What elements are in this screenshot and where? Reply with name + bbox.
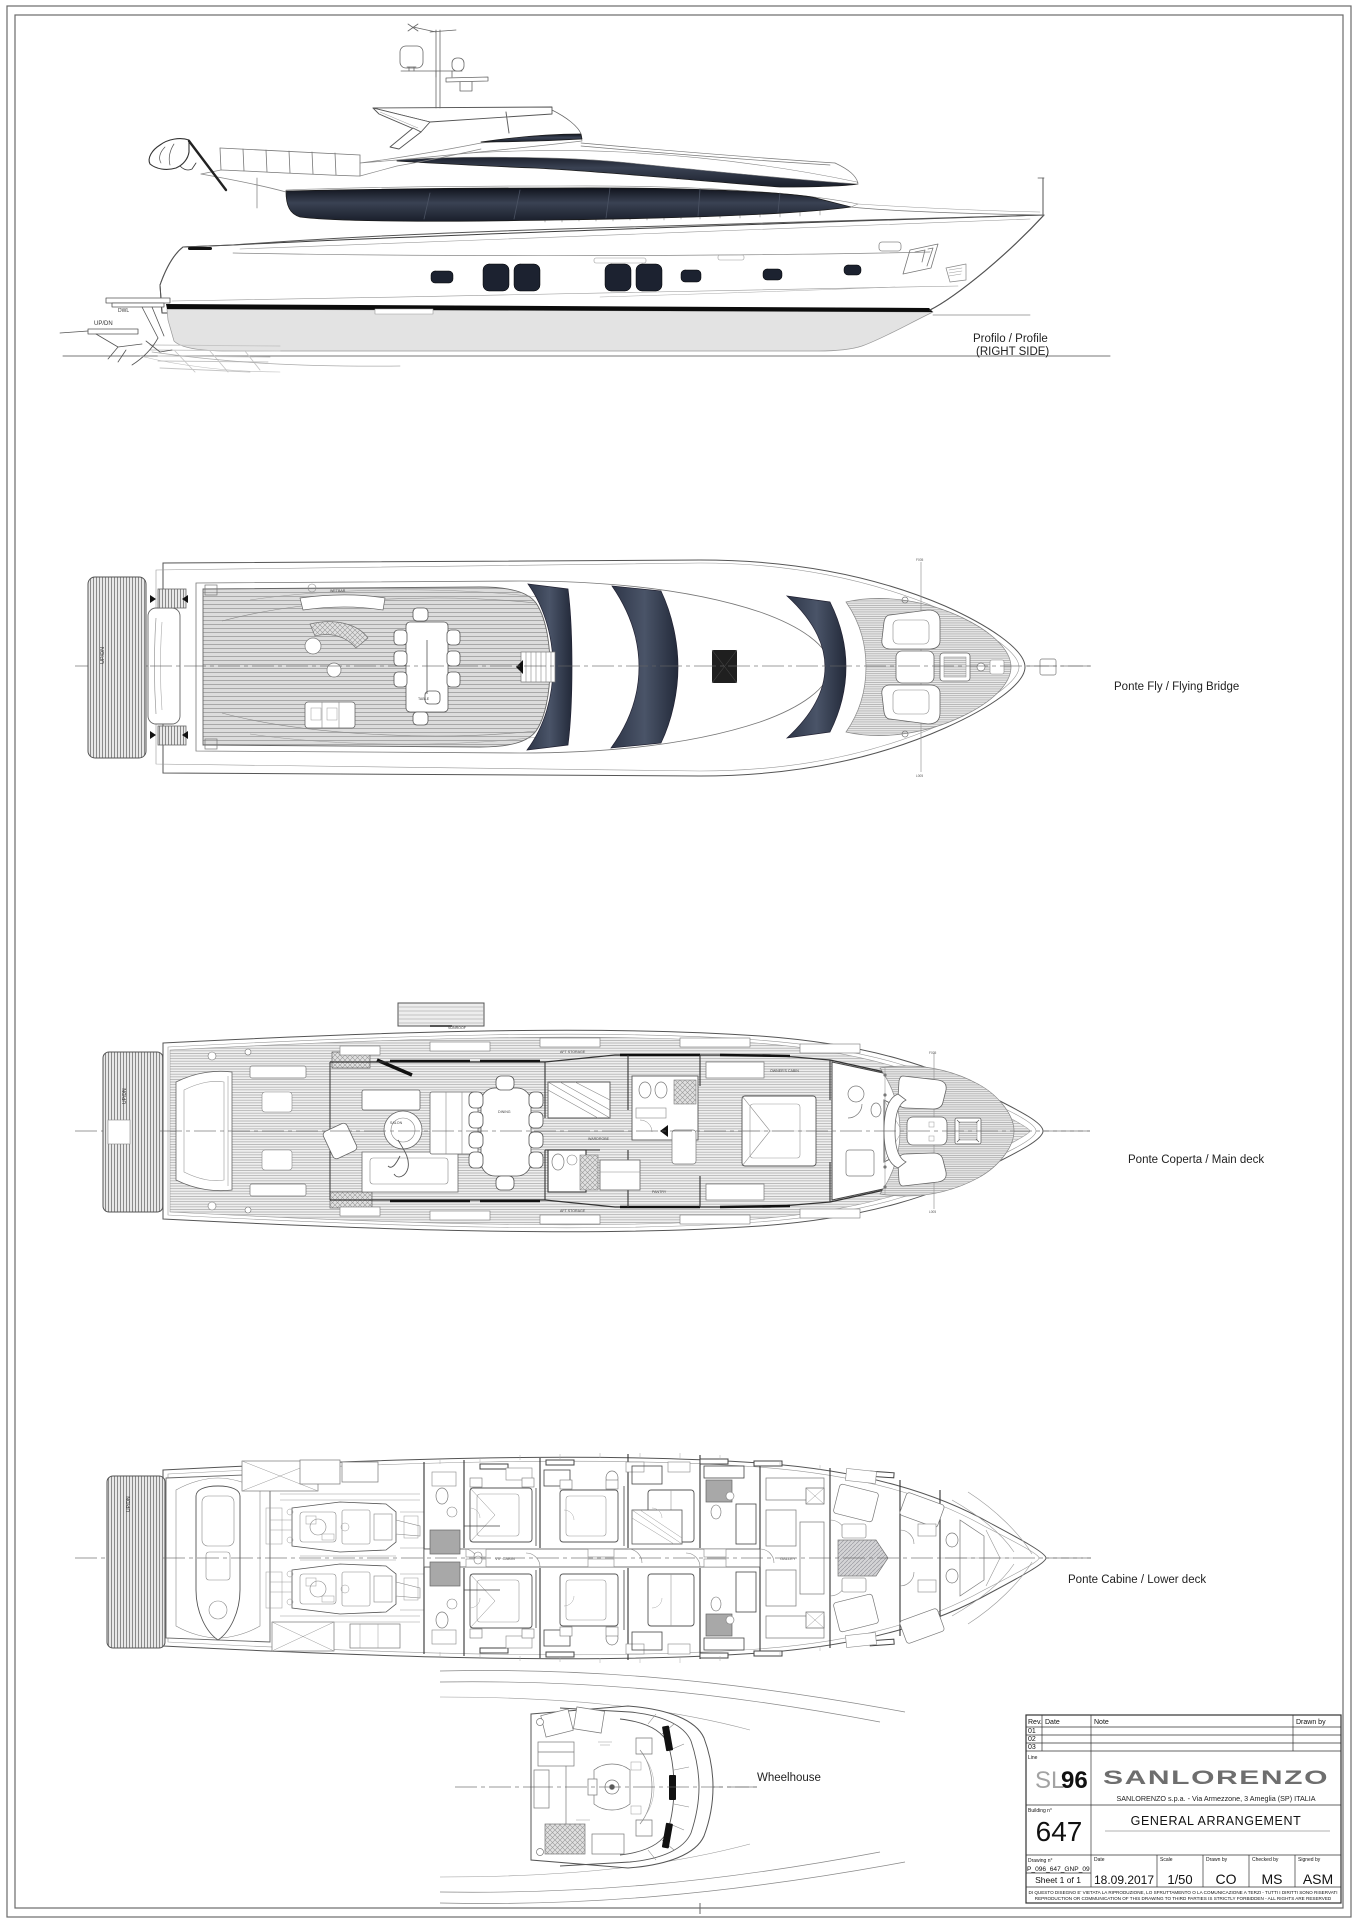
svg-text:Ponte Cabine / Lower deck: Ponte Cabine / Lower deck bbox=[1068, 1574, 1206, 1586]
svg-text:Drawing n°: Drawing n° bbox=[1028, 1858, 1053, 1864]
svg-text:Line: Line bbox=[1028, 1755, 1038, 1761]
svg-text:L005: L005 bbox=[929, 1210, 936, 1214]
svg-text:MS: MS bbox=[1262, 1871, 1283, 1887]
svg-text:01: 01 bbox=[1028, 1728, 1036, 1735]
svg-text:L005: L005 bbox=[916, 774, 923, 778]
svg-text:F005: F005 bbox=[929, 1051, 936, 1055]
svg-text:Scale: Scale bbox=[1160, 1857, 1173, 1863]
svg-text:02: 02 bbox=[1028, 1736, 1036, 1743]
svg-text:Drawn by: Drawn by bbox=[1296, 1719, 1326, 1726]
svg-text:SANLORENZO s.p.a. - Via Armez: SANLORENZO s.p.a. - Via Armezzone, 3 Ame… bbox=[1116, 1794, 1315, 1803]
svg-text:AFT STORAGE: AFT STORAGE bbox=[560, 1050, 586, 1054]
svg-text:DWL: DWL bbox=[118, 308, 129, 314]
svg-text:Building n°: Building n° bbox=[1028, 1808, 1052, 1814]
svg-text:Ponte Coperta / Main deck: Ponte Coperta / Main deck bbox=[1128, 1154, 1264, 1166]
svg-text:Date: Date bbox=[1045, 1719, 1060, 1726]
svg-text:F005: F005 bbox=[916, 558, 923, 562]
svg-text:Rev.: Rev. bbox=[1028, 1719, 1042, 1726]
svg-text:Drawn by: Drawn by bbox=[1206, 1857, 1228, 1863]
svg-text:SANLORENZO: SANLORENZO bbox=[1103, 1768, 1329, 1789]
svg-text:Sheet 1 of 1: Sheet 1 of 1 bbox=[1035, 1875, 1081, 1885]
svg-text:GENERAL ARRANGEMENT: GENERAL ARRANGEMENT bbox=[1131, 1814, 1302, 1828]
svg-text:REPRODUCTION OR COMMUNICATION: REPRODUCTION OR COMMUNICATION OF THIS DR… bbox=[1035, 1896, 1332, 1901]
svg-text:VIP CABIN: VIP CABIN bbox=[495, 1556, 515, 1561]
svg-text:18.09.2017: 18.09.2017 bbox=[1094, 1873, 1154, 1887]
svg-text:PANTRY: PANTRY bbox=[652, 1190, 667, 1194]
svg-text:GALLEY: GALLEY bbox=[780, 1556, 796, 1561]
svg-text:P_096_647_GNP_09: P_096_647_GNP_09 bbox=[1027, 1866, 1090, 1873]
svg-text:ASM: ASM bbox=[1303, 1871, 1333, 1887]
svg-text:SL: SL bbox=[1035, 1767, 1064, 1794]
svg-text:WARDROBE: WARDROBE bbox=[588, 1137, 610, 1141]
svg-text:AFT STORAGE: AFT STORAGE bbox=[560, 1209, 586, 1213]
svg-text:Profilo / Profile: Profilo / Profile bbox=[973, 333, 1048, 345]
svg-text:Date: Date bbox=[1094, 1857, 1105, 1863]
svg-text:Checked by: Checked by bbox=[1252, 1857, 1279, 1863]
svg-text:96: 96 bbox=[1061, 1767, 1088, 1794]
svg-text:WETBAR: WETBAR bbox=[330, 589, 346, 593]
svg-text:(RIGHT SIDE): (RIGHT SIDE) bbox=[976, 346, 1049, 358]
svg-text:TABLE: TABLE bbox=[418, 697, 430, 701]
svg-text:1/50: 1/50 bbox=[1167, 1872, 1192, 1887]
svg-text:UP/DN: UP/DN bbox=[94, 321, 113, 327]
svg-text:Wheelhouse: Wheelhouse bbox=[757, 1772, 821, 1784]
svg-text:647: 647 bbox=[1036, 1816, 1083, 1847]
svg-text:03: 03 bbox=[1028, 1744, 1036, 1751]
svg-text:UP/DN: UP/DN bbox=[122, 1088, 128, 1104]
svg-text:DI QUESTO DISEGNO E' VIETATA L: DI QUESTO DISEGNO E' VIETATA LA RIPRODUZ… bbox=[1028, 1890, 1337, 1895]
svg-text:CO: CO bbox=[1216, 1871, 1237, 1887]
svg-text:Signed by: Signed by bbox=[1298, 1857, 1321, 1863]
svg-text:UP/DN: UP/DN bbox=[100, 647, 106, 664]
svg-text:SALON: SALON bbox=[390, 1121, 403, 1125]
svg-text:Note: Note bbox=[1094, 1719, 1109, 1726]
svg-text:SUNROOF: SUNROOF bbox=[448, 1026, 467, 1030]
svg-text:UP/DN: UP/DN bbox=[126, 1496, 132, 1512]
svg-text:Ponte Fly / Flying Bridge: Ponte Fly / Flying Bridge bbox=[1114, 681, 1239, 693]
svg-text:OWNER'S CABIN: OWNER'S CABIN bbox=[770, 1069, 799, 1073]
svg-text:DINING: DINING bbox=[498, 1110, 511, 1114]
